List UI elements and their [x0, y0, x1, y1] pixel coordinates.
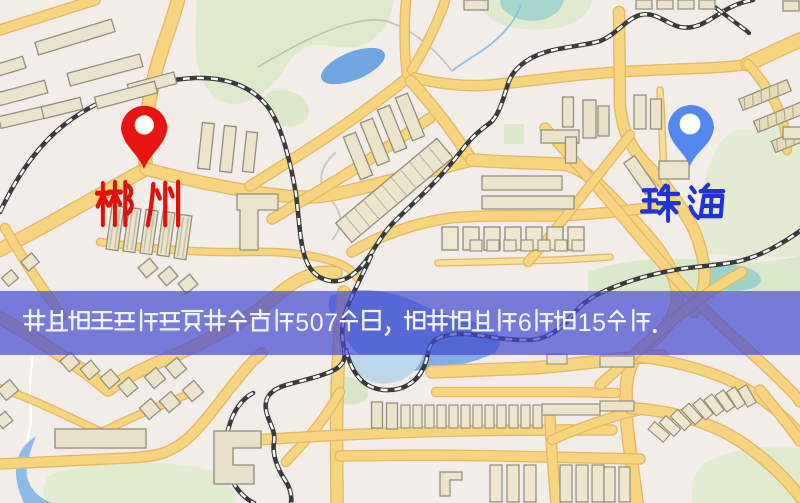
- svg-text:0: 0: [310, 309, 324, 337]
- svg-text:1: 1: [578, 309, 592, 337]
- svg-text:5: 5: [295, 309, 309, 337]
- svg-text:5: 5: [592, 309, 606, 337]
- svg-text:7: 7: [324, 309, 338, 337]
- svg-text:6: 6: [518, 309, 532, 337]
